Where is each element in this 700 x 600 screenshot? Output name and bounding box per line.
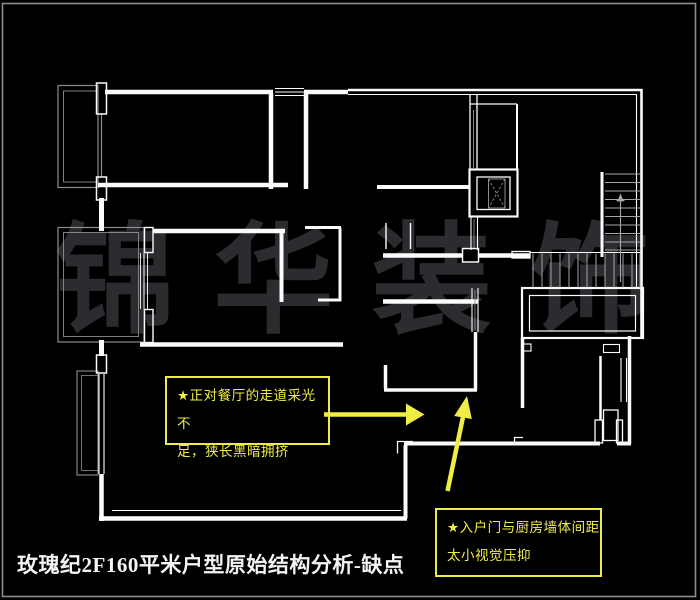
defect-arrow-right-icon [324, 404, 425, 426]
page-title: 玫瑰纪2F160平米户型原始结构分析-缺点 [17, 549, 404, 579]
defect-note-line: 足，狭长黑暗拥挤 [177, 438, 328, 466]
defect-note-line: 太小视觉压抑 [447, 542, 600, 570]
entry-door [595, 410, 623, 443]
balconies [58, 86, 144, 476]
stair-direction-arrow-icon [617, 194, 624, 202]
staircase [530, 172, 641, 288]
floorplan-analysis-image: 锦 华 装 饰 [0, 0, 700, 600]
defect-note-corridor: ★正对餐厅的走道采光不 足，狭长黑暗拥挤 [165, 376, 330, 445]
defect-note-entry: ★入户门与厨房墙体间距 太小视觉压抑 [435, 508, 602, 577]
defect-note-line: ★正对餐厅的走道采光不 [177, 382, 328, 438]
defect-note-line: ★入户门与厨房墙体间距 [447, 514, 600, 542]
